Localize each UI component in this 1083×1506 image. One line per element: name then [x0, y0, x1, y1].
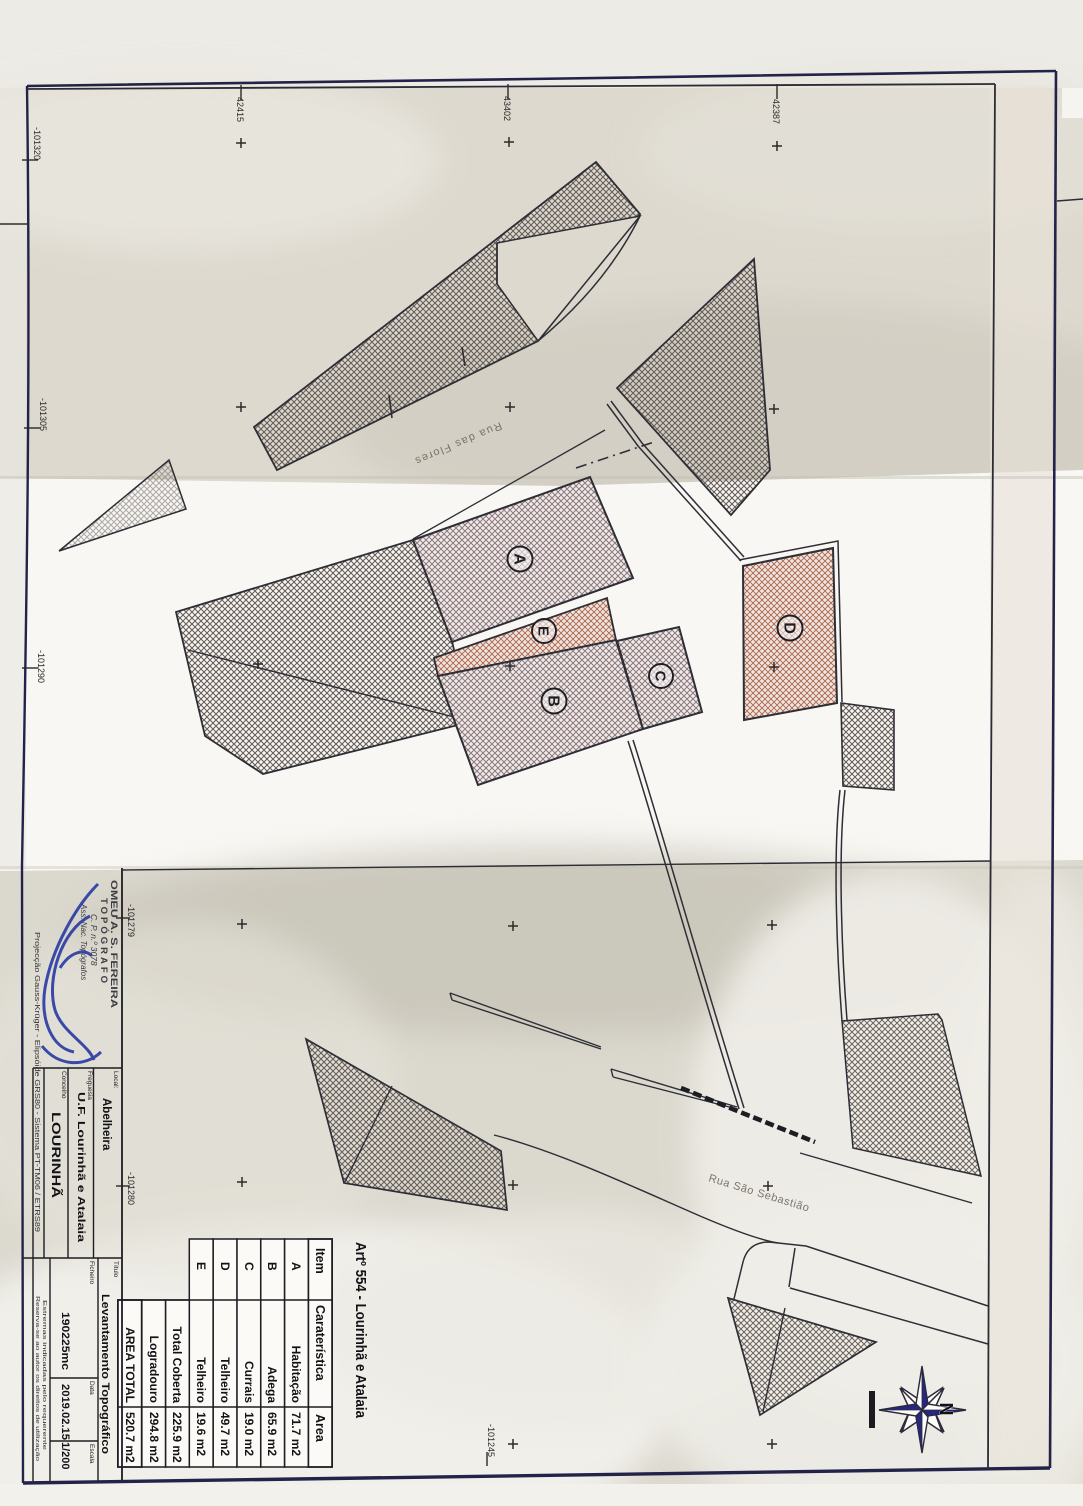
svg-text:Caraterística: Caraterística — [313, 1305, 327, 1382]
svg-text:Currais: Currais — [242, 1361, 256, 1403]
svg-text:19.0 m2: 19.0 m2 — [242, 1412, 256, 1456]
svg-text:Ass. Nac. Topógrafos: Ass. Nac. Topógrafos — [79, 903, 88, 980]
svg-text:Ficheiro: Ficheiro — [88, 1261, 95, 1285]
svg-text:-101305: -101305 — [38, 398, 48, 431]
svg-text:Area: Area — [313, 1414, 327, 1443]
svg-text:-101279: -101279 — [126, 904, 136, 937]
svg-text:Projecção Gauss-Krüger - Elips: Projecção Gauss-Krüger - Elipsóide GRS80… — [33, 932, 42, 1232]
svg-text:AREA TOTAL: AREA TOTAL — [123, 1327, 137, 1403]
svg-text:Local:: Local: — [112, 1071, 119, 1089]
svg-text:Habitação: Habitação — [289, 1346, 303, 1403]
svg-text:42415: 42415 — [235, 97, 245, 122]
svg-text:Item: Item — [313, 1248, 327, 1274]
svg-text:B: B — [265, 1262, 279, 1271]
svg-text:B: B — [545, 695, 562, 707]
svg-text:Artº 554 - Lourinhã e Atalaia: Artº 554 - Lourinhã e Atalaia — [352, 1242, 368, 1419]
svg-text:42387: 42387 — [771, 99, 781, 124]
svg-text:D: D — [218, 1262, 232, 1271]
svg-text:43402: 43402 — [502, 96, 512, 121]
svg-text:2019.02.15: 2019.02.15 — [59, 1384, 71, 1440]
svg-text:Telheiro: Telheiro — [194, 1357, 208, 1403]
svg-text:71.7 m2: 71.7 m2 — [289, 1412, 303, 1456]
svg-text:Abelheira: Abelheira — [100, 1098, 112, 1151]
svg-text:49.7 m2: 49.7 m2 — [218, 1412, 232, 1456]
svg-text:65.9 m2: 65.9 m2 — [265, 1412, 279, 1456]
svg-text:N: N — [936, 1403, 956, 1416]
svg-text:1/200: 1/200 — [59, 1442, 71, 1470]
svg-text:520.7 m2: 520.7 m2 — [123, 1412, 137, 1463]
svg-text:-101320: -101320 — [32, 127, 42, 160]
svg-text:C: C — [652, 671, 669, 682]
svg-text:Estremas indicadas pelo requer: Estremas indicadas pelo requerente — [41, 1300, 47, 1450]
svg-text:-101290: -101290 — [36, 650, 46, 683]
svg-text:D: D — [781, 622, 798, 634]
svg-text:C: C — [242, 1262, 256, 1271]
svg-text:Total Coberta: Total Coberta — [170, 1327, 184, 1404]
svg-text:Data: Data — [88, 1381, 95, 1395]
svg-text:Reserva-se ao autor os direito: Reserva-se ao autor os direitos de utili… — [34, 1296, 40, 1461]
svg-text:E: E — [194, 1262, 208, 1270]
svg-text:C. P. n.º 3078: C. P. n.º 3078 — [89, 914, 99, 966]
svg-text:225.9 m2: 225.9 m2 — [170, 1412, 184, 1463]
svg-text:Concelho: Concelho — [60, 1071, 67, 1099]
svg-text:Logradouro: Logradouro — [147, 1336, 161, 1403]
svg-text:U.F. Lourinhã e Atalaia: U.F. Lourinhã e Atalaia — [75, 1092, 87, 1242]
svg-text:294.8 m2: 294.8 m2 — [147, 1412, 161, 1463]
svg-text:Adega: Adega — [265, 1366, 279, 1403]
svg-text:A: A — [511, 553, 528, 565]
svg-text:19.6 m2: 19.6 m2 — [194, 1412, 208, 1456]
svg-text:Levantamento Topográfico: Levantamento Topográfico — [99, 1294, 111, 1454]
svg-text:Telheiro: Telheiro — [218, 1357, 232, 1403]
svg-text:190225mc: 190225mc — [59, 1312, 71, 1370]
svg-text:-101280: -101280 — [126, 1172, 136, 1205]
svg-text:LOURINHÃ: LOURINHÃ — [49, 1112, 62, 1198]
svg-text:Título: Título — [112, 1261, 119, 1278]
svg-text:Escala: Escala — [88, 1444, 95, 1464]
svg-text:A: A — [289, 1262, 303, 1271]
svg-text:E: E — [535, 626, 552, 636]
